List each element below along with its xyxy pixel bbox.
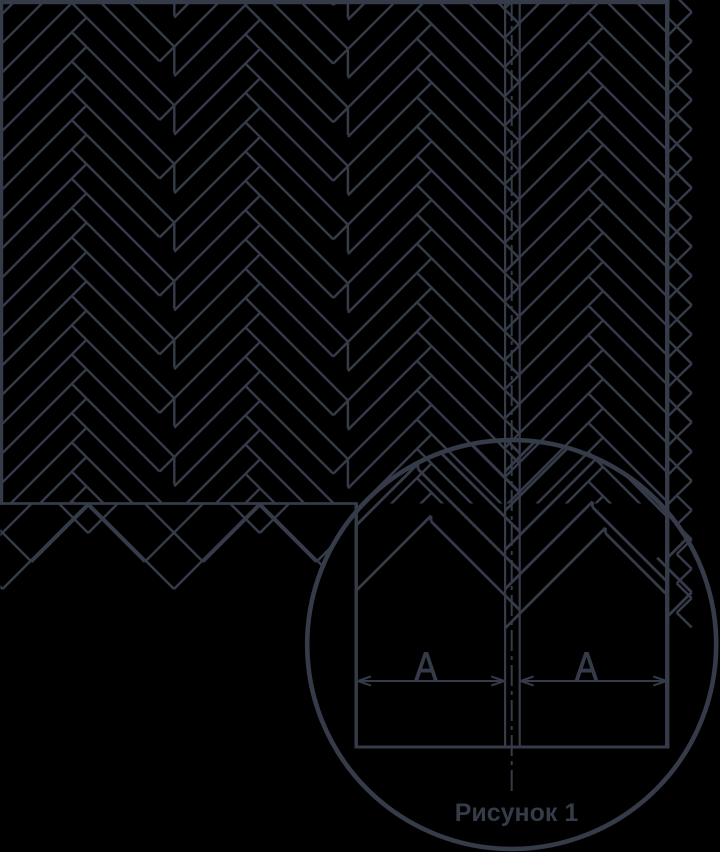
- svg-text:A: A: [415, 643, 438, 688]
- svg-text:A: A: [575, 643, 598, 688]
- svg-text:Рисунок 1: Рисунок 1: [455, 799, 579, 827]
